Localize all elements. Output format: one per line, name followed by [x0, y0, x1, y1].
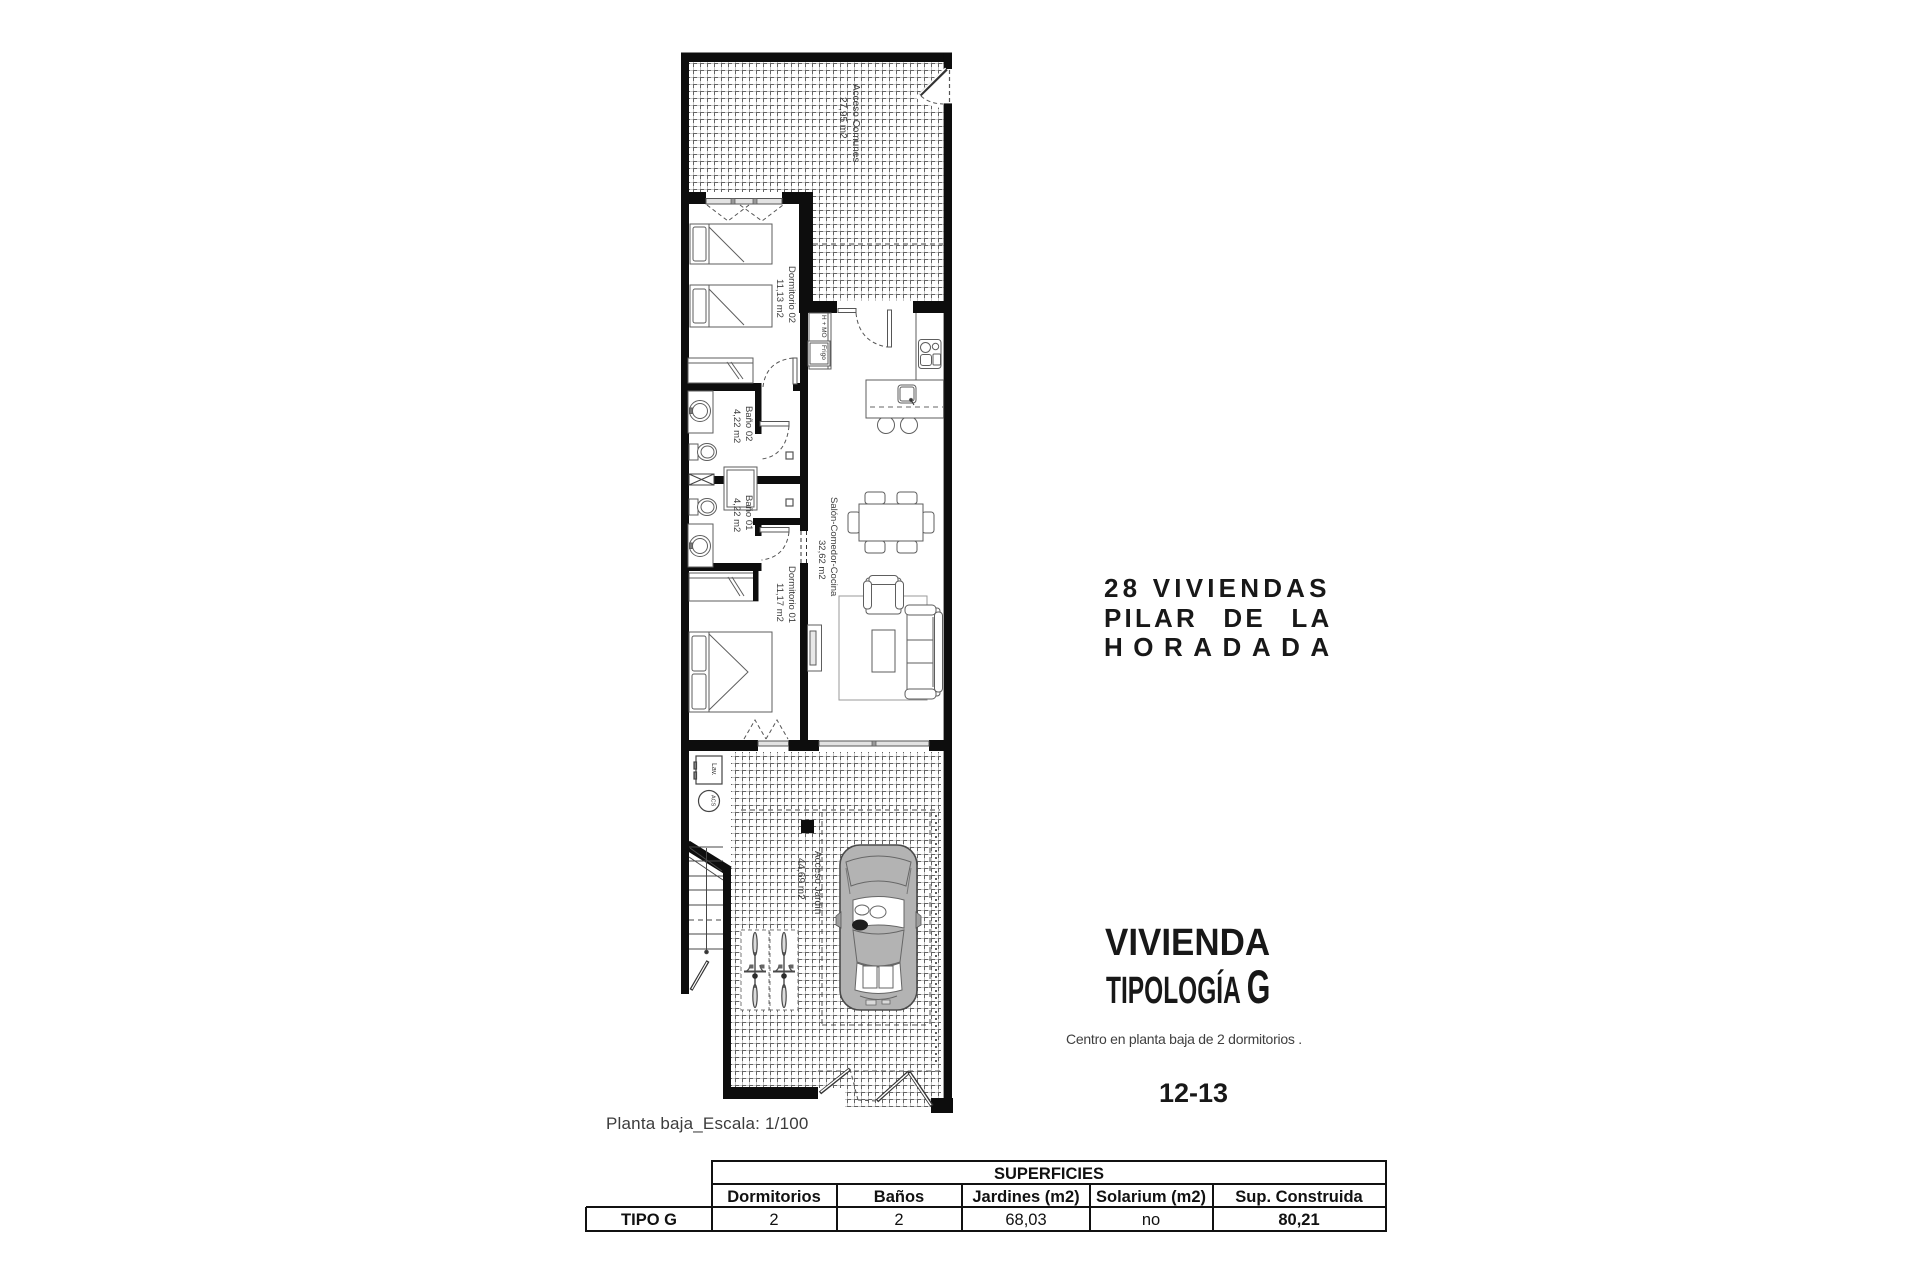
svg-text:Salón-Comedor-Cocina: Salón-Comedor-Cocina: [828, 497, 839, 597]
svg-text:H + MO: H + MO: [820, 315, 827, 338]
svg-text:11,13 m2: 11,13 m2: [774, 279, 785, 318]
svg-text:Acceso Jardín: Acceso Jardín: [812, 851, 823, 914]
svg-text:27,95 m2: 27,95 m2: [837, 97, 848, 139]
svg-text:44,69 m2: 44,69 m2: [795, 858, 806, 900]
svg-text:11,17 m2: 11,17 m2: [774, 583, 785, 622]
svg-text:Baño 01: Baño 01: [743, 495, 754, 530]
svg-text:Dormitorio 02: Dormitorio 02: [786, 266, 797, 323]
svg-text:32,62 m2: 32,62 m2: [816, 540, 827, 580]
svg-text:Baños: Baños: [874, 1188, 924, 1206]
svg-text:no: no: [1142, 1211, 1160, 1229]
svg-text:Lav.: Lav.: [710, 763, 717, 776]
svg-text:Frigo: Frigo: [820, 345, 827, 360]
svg-text:68,03: 68,03: [1005, 1211, 1046, 1229]
svg-text:SUPERFICIES: SUPERFICIES: [994, 1165, 1104, 1183]
svg-text:Acceso Comunes: Acceso Comunes: [850, 84, 861, 162]
svg-text:Dormitorio 01: Dormitorio 01: [786, 566, 797, 623]
svg-text:4,22 m2: 4,22 m2: [731, 498, 742, 532]
svg-text:Baño 02: Baño 02: [743, 406, 754, 441]
svg-text:2: 2: [769, 1211, 778, 1229]
svg-text:80,21: 80,21: [1278, 1211, 1319, 1229]
svg-text:ACS: ACS: [710, 795, 716, 807]
svg-text:Solarium (m2): Solarium (m2): [1096, 1188, 1206, 1206]
svg-text:4,22 m2: 4,22 m2: [731, 409, 742, 443]
svg-text:Sup. Construida: Sup. Construida: [1235, 1188, 1363, 1206]
svg-text:Dormitorios: Dormitorios: [727, 1188, 821, 1206]
svg-text:TIPO G: TIPO G: [621, 1211, 677, 1229]
svg-text:Jardines (m2): Jardines (m2): [972, 1188, 1079, 1206]
svg-text:2: 2: [894, 1211, 903, 1229]
